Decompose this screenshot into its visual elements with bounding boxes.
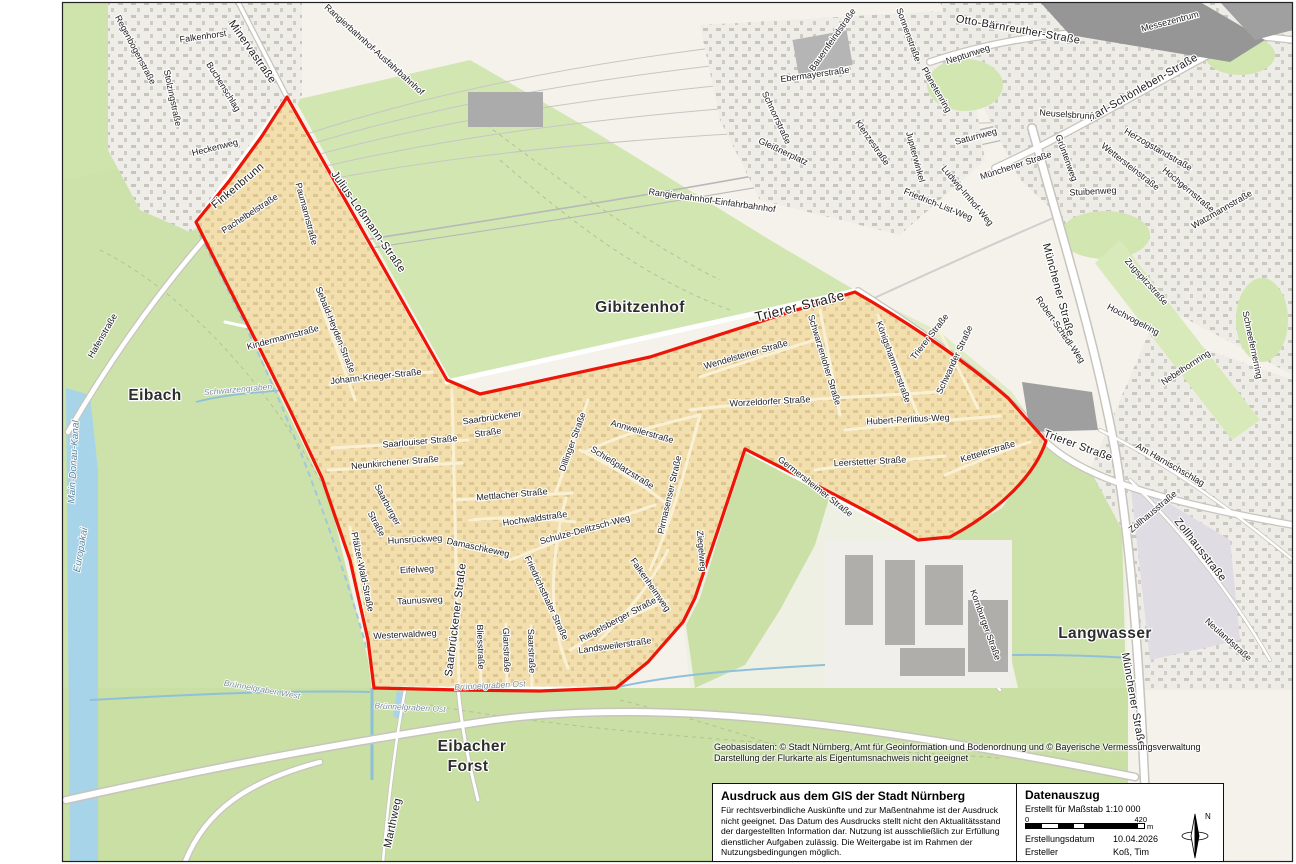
scale-seg (1084, 824, 1138, 828)
map-label: Eifelweg (400, 563, 435, 575)
map-label: Eibacher (438, 738, 507, 755)
disclaimer-box: Ausdruck aus dem GIS der Stadt Nürnberg … (712, 783, 1017, 862)
creator-value: Koß, Tim (1113, 847, 1149, 857)
gis-printout: { "attribution": { "line1": "Geobasisdat… (0, 0, 1296, 864)
map-label: Glanstraße (501, 628, 513, 673)
map-label: Bliesstraße (475, 624, 487, 669)
scale-bar: 0 420 m (1025, 816, 1147, 831)
map-canvas: RegenbogenstraßeStolzingstraßeFalkenhors… (0, 0, 1296, 864)
scale-end: 420 (1134, 816, 1147, 823)
attribution-line1: Geobasisdaten: © Stadt Nürnberg, Amt für… (714, 742, 1294, 753)
map-label: Langwasser (1058, 625, 1152, 642)
scale-seg (1026, 824, 1042, 828)
scale-seg (1074, 824, 1084, 828)
scale-seg (1138, 824, 1144, 828)
map-label: Gibitzenhof (595, 299, 685, 316)
scale-bar-segments (1025, 823, 1145, 829)
creator-label: Ersteller (1025, 847, 1113, 857)
attribution-line2: Darstellung der Flurkarte als Eigentumsn… (714, 753, 1294, 764)
map-label: Forst (448, 758, 489, 775)
data-box-title: Datenauszug (1025, 788, 1215, 802)
creation-date-label: Erstellungsdatum (1025, 834, 1113, 844)
compass-rose: N (1173, 810, 1217, 860)
compass-north-label: N (1205, 812, 1211, 821)
scale-seg (1058, 824, 1074, 828)
disclaimer-title: Ausdruck aus dem GIS der Stadt Nürnberg (721, 789, 1008, 803)
creation-date-value: 10.04.2026 (1113, 834, 1158, 844)
map-label: Saarstraße (526, 629, 538, 674)
data-box: Datenauszug Erstellt für Maßstab 1:10 00… (1016, 783, 1224, 862)
scale-unit: m (1147, 823, 1153, 831)
scale-start: 0 (1025, 816, 1029, 823)
attribution: Geobasisdaten: © Stadt Nürnberg, Amt für… (714, 742, 1294, 764)
scale-seg (1042, 824, 1058, 828)
map-label: Eibach (128, 387, 181, 404)
disclaimer-body: Für rechtsverbindliche Auskünfte und zur… (721, 805, 1008, 858)
